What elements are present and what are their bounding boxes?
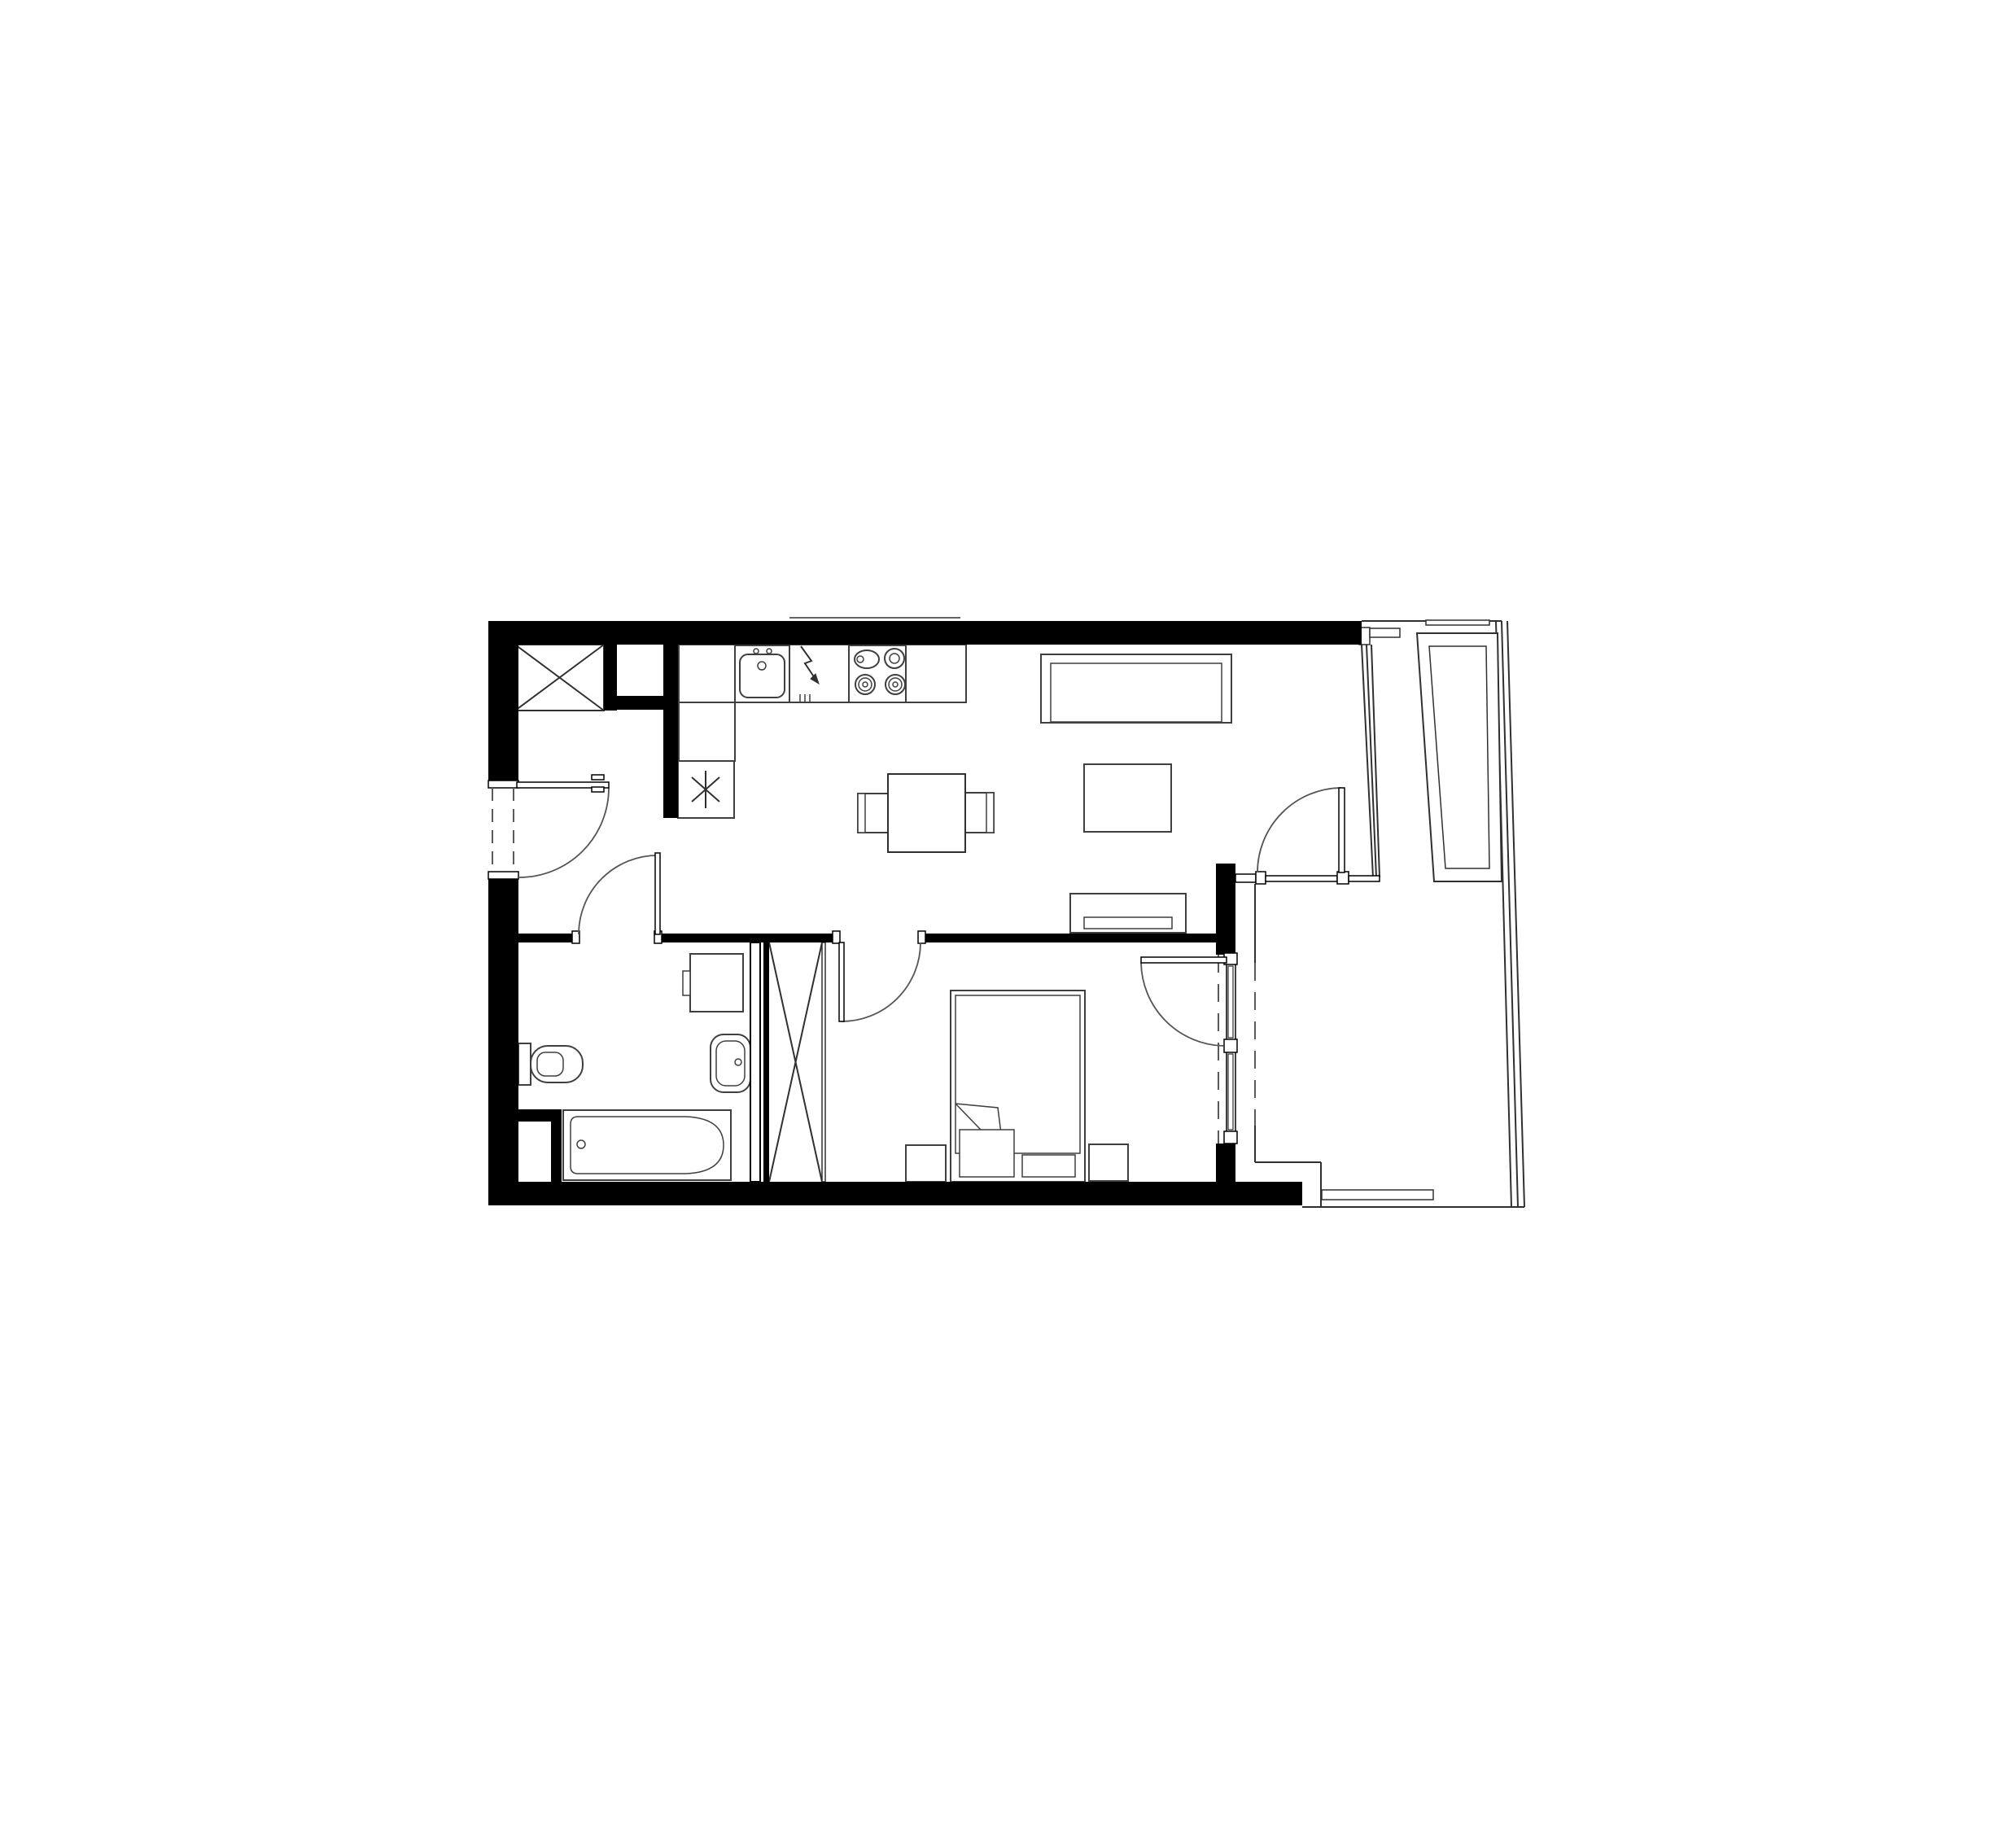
toilet-bowl-inner <box>537 1052 563 1076</box>
wall-left-upper <box>488 621 518 781</box>
wall-shaft-pier <box>604 645 617 711</box>
sofa-seat <box>1051 663 1222 722</box>
dining-table <box>888 774 965 852</box>
door-frame <box>918 931 925 943</box>
pillow <box>960 1130 1014 1177</box>
coffee-table <box>1084 764 1171 832</box>
nightstand <box>1089 1144 1128 1181</box>
wall-closet-back <box>763 942 769 1182</box>
nightstand <box>906 1145 946 1182</box>
balcony-threshold <box>1235 874 1256 882</box>
kitchen-counter <box>679 645 966 702</box>
balcony-threshold-block <box>1256 872 1266 884</box>
tv <box>1084 917 1172 929</box>
bedroom-door-leaf <box>839 942 844 1021</box>
wall-bedroom-north <box>925 934 1216 942</box>
bedroom-window-glass <box>1228 1054 1233 1130</box>
bedroom-door-arc <box>842 942 921 1021</box>
wall-top <box>488 621 1362 645</box>
niche-recess <box>617 645 663 696</box>
wall-bath-top-left <box>518 934 579 942</box>
bathroom-door-leaf <box>655 853 660 934</box>
bathroom-east-wall <box>750 942 760 1182</box>
wall-sw-ledge <box>488 1109 562 1122</box>
wall-bath-top-right <box>662 934 833 942</box>
washing-machine-handle <box>683 971 690 995</box>
stove-burner <box>857 656 864 663</box>
balcony-threshold-block <box>1337 872 1349 884</box>
bathtub-inner <box>571 1117 724 1174</box>
bedroom-window-block <box>1224 1039 1237 1052</box>
stove-burner <box>893 682 898 687</box>
sink-faucet <box>754 649 759 654</box>
stove-burner <box>863 682 868 687</box>
dining-chair-back <box>858 794 865 833</box>
bedroom-window-block <box>1224 1131 1237 1144</box>
door-frame <box>833 931 840 943</box>
balcony-top-rail <box>1426 620 1489 625</box>
living-balcony-door-arc <box>1257 788 1341 872</box>
washing-machine <box>690 954 743 1012</box>
toilet-tank <box>518 1043 531 1085</box>
kitchen-sink-basin <box>740 654 785 698</box>
bedroom-balcony-door-leaf <box>1141 957 1227 963</box>
entrance-frame <box>488 872 518 879</box>
dining-chair-back <box>986 793 994 833</box>
glazing-sill <box>1370 628 1400 637</box>
wall-left-lower <box>488 879 518 1182</box>
balcony-threshold-strip <box>1322 1190 1433 1200</box>
bedroom-window-glass <box>1228 966 1233 1038</box>
sink-drain <box>758 662 766 670</box>
balcony-threshold <box>1349 876 1380 881</box>
entrance-frame <box>488 781 518 788</box>
wall-kitchen-pier <box>663 645 678 818</box>
floor-plan <box>0 0 2016 1828</box>
entrance-door-arc <box>518 788 609 877</box>
pillow <box>1022 1155 1075 1177</box>
wall-bottom <box>488 1182 1302 1205</box>
washbasin-faucet <box>735 1059 741 1065</box>
closet-front <box>822 942 825 1182</box>
sink-faucet <box>767 649 772 654</box>
floor-plan-drawing <box>0 0 2016 1828</box>
wall-bedroom-east-pier-bottom <box>1216 1144 1235 1182</box>
kitchen-counter-corner <box>679 702 735 761</box>
wall-bedroom-east-pier-top <box>1216 864 1235 955</box>
bathroom-door-arc <box>579 855 658 934</box>
balcony-threshold <box>1266 876 1337 881</box>
bedroom-balcony-door-arc <box>1141 963 1223 1046</box>
bathtub-faucet <box>577 1140 585 1148</box>
living-balcony-door-leaf <box>1339 788 1345 872</box>
stove-burner <box>890 654 899 663</box>
wall-sw-strip <box>551 1122 562 1182</box>
wall-niche-bottom <box>617 696 678 710</box>
